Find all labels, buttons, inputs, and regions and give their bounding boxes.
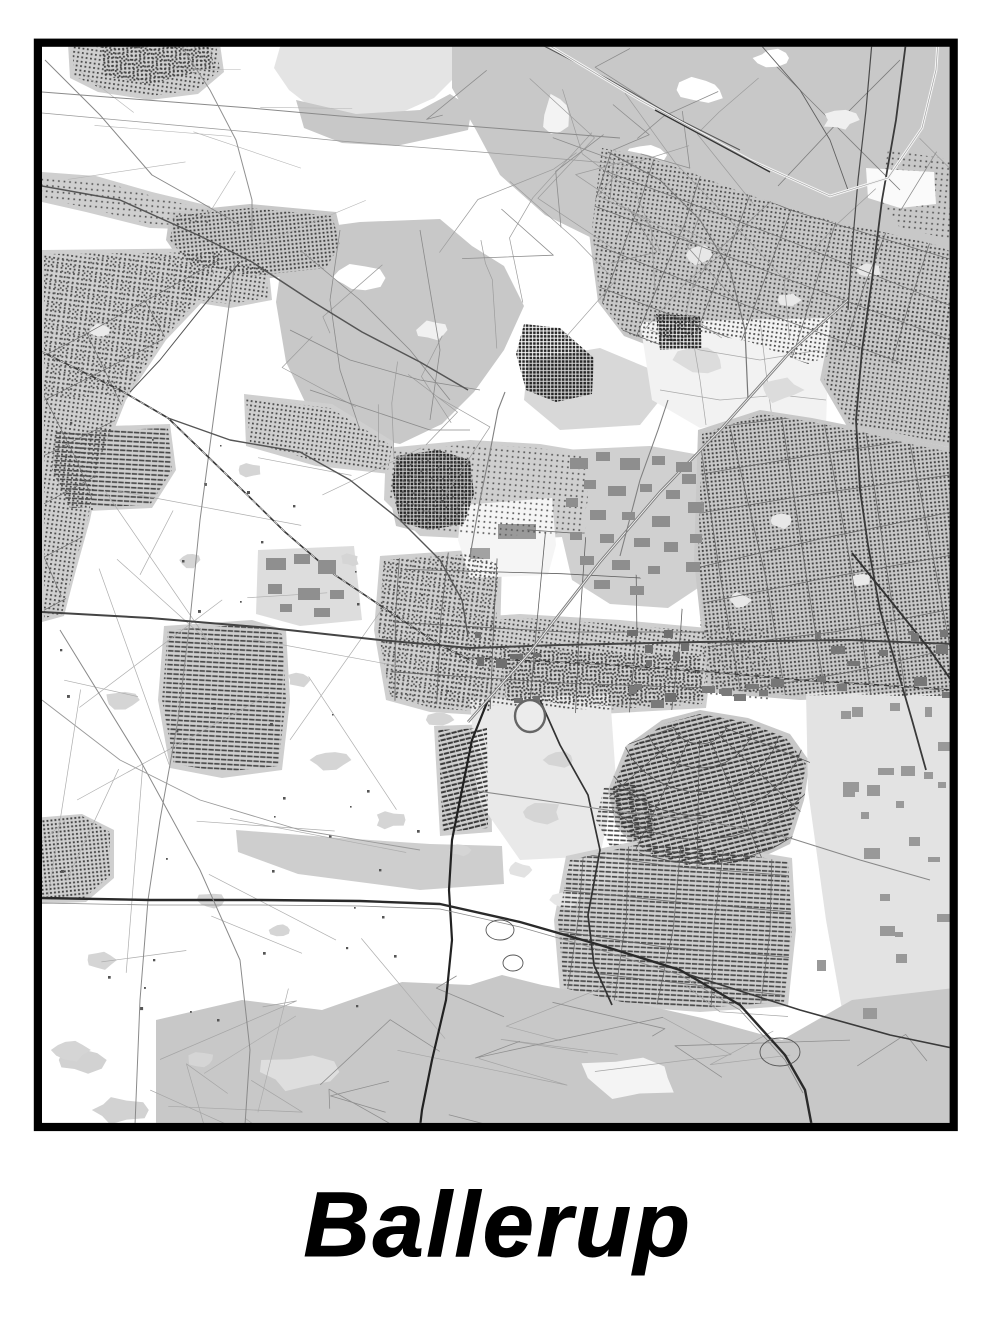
- svg-text:Ballerup: Ballerup: [304, 1174, 693, 1276]
